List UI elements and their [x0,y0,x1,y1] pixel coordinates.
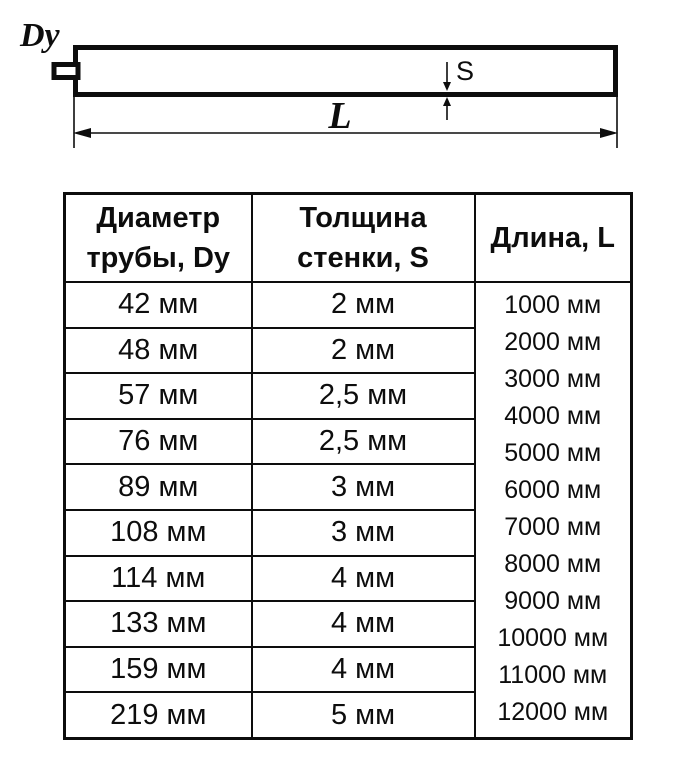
cell-diameter: 219 мм [65,692,252,738]
length-item: 5000 мм [504,435,601,472]
cell-diameter: 89 мм [65,464,252,510]
length-item: 7000 мм [504,509,601,546]
length-item: 1000 мм [504,287,601,324]
length-item: 12000 мм [497,694,608,731]
header-thickness-line1: Толщина [253,198,474,238]
pipe-rectangle [76,48,616,95]
cell-diameter: 48 мм [65,328,252,374]
cell-thickness: 3 мм [252,464,475,510]
length-item: 4000 мм [504,398,601,435]
lengths-list: 1000 мм 2000 мм 3000 мм 4000 мм 5000 мм … [476,287,631,731]
length-label: L [327,95,351,137]
pipe-spec-table: Диаметр трубы, Dy Толщина стенки, S Длин… [63,192,633,740]
length-item: 2000 мм [504,324,601,361]
header-diameter-line2: трубы, Dy [66,238,251,278]
header-thickness-line2: стенки, S [253,238,474,278]
cell-diameter: 108 мм [65,510,252,556]
header-diameter-line1: Диаметр [66,198,251,238]
pipe-drawing-svg: Dy S L [0,0,681,175]
length-item: 10000 мм [497,620,608,657]
cell-thickness: 2 мм [252,282,475,328]
header-diameter: Диаметр трубы, Dy [65,194,252,283]
cell-thickness: 3 мм [252,510,475,556]
cell-diameter: 42 мм [65,282,252,328]
length-item: 11000 мм [498,657,607,694]
header-row: Диаметр трубы, Dy Толщина стенки, S Длин… [65,194,632,283]
cell-diameter: 76 мм [65,419,252,465]
header-length: Длина, L [475,194,632,283]
cell-thickness: 4 мм [252,601,475,647]
table-row: 42 мм 2 мм 1000 мм 2000 мм 3000 мм 4000 … [65,282,632,328]
cell-thickness: 4 мм [252,556,475,602]
cell-thickness: 5 мм [252,692,475,738]
wall-thickness-label: S [456,56,474,86]
diameter-label: Dy [19,17,61,54]
page: { "diagram": { "dy_label": "Dy", "s_labe… [0,0,681,784]
pipe-inlet-tab [54,65,78,78]
cell-diameter: 133 мм [65,601,252,647]
length-item: 9000 мм [504,583,601,620]
length-item: 3000 мм [504,361,601,398]
cell-lengths: 1000 мм 2000 мм 3000 мм 4000 мм 5000 мм … [475,282,632,739]
length-item: 6000 мм [504,472,601,509]
cell-thickness: 4 мм [252,647,475,693]
length-item: 8000 мм [504,546,601,583]
cell-diameter: 114 мм [65,556,252,602]
header-length-line1: Длина, L [476,218,631,258]
header-thickness: Толщина стенки, S [252,194,475,283]
cell-diameter: 57 мм [65,373,252,419]
cell-diameter: 159 мм [65,647,252,693]
pipe-drawing: Dy S L [0,0,681,175]
cell-thickness: 2,5 мм [252,373,475,419]
cell-thickness: 2 мм [252,328,475,374]
cell-thickness: 2,5 мм [252,419,475,465]
